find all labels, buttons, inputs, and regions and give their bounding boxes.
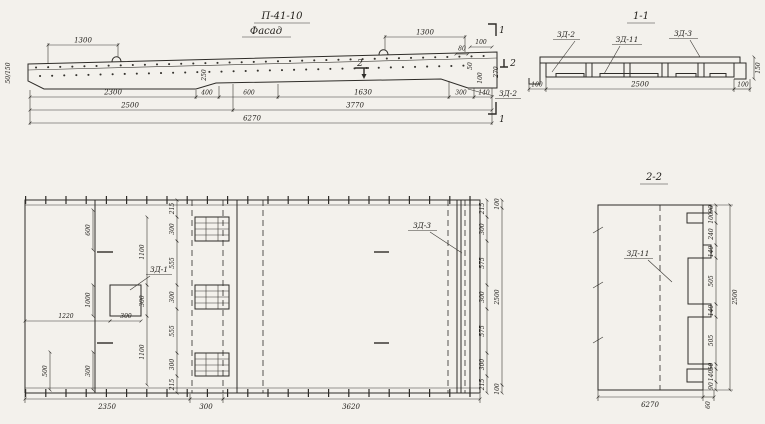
right-outer-dim: 100 <box>494 198 501 210</box>
s22-chain-dim: 50 <box>708 363 715 371</box>
dim-1220: 1220 <box>58 313 73 320</box>
facade-lifting-loop-right <box>379 50 388 55</box>
dim-6270: 6270 <box>243 115 261 123</box>
dim-300-bottom: 300 <box>199 403 213 411</box>
section11-right-step <box>734 63 746 79</box>
dim-100-top: 100 <box>475 39 487 46</box>
dim-250: 250 <box>201 69 208 82</box>
cut2-mid-arrow <box>362 74 367 79</box>
mesh-plate <box>195 353 229 376</box>
facade-beam-outline <box>28 52 497 89</box>
mid-chain-dim: 555 <box>169 257 176 269</box>
right-chain-dim: 300 <box>479 291 486 303</box>
dim-1630: 1630 <box>354 89 372 97</box>
section22-bottom-dim: 6270 60 <box>598 390 714 409</box>
dim-2350: 2350 <box>97 403 116 411</box>
cut1-bottom-label: 1 <box>499 115 505 125</box>
dim-600: 600 <box>243 90 255 97</box>
dim-1300-right: 1300 <box>416 29 434 37</box>
dim-80: 80 <box>458 46 466 53</box>
dim-300-square: 300 <box>120 313 132 320</box>
s22-chain-dim: 505 <box>708 335 715 347</box>
facade-dim-row2: 2500 3770 <box>30 102 492 111</box>
dim-3770: 3770 <box>346 102 364 110</box>
cut1-top-label: 1 <box>499 26 505 36</box>
section11-top-flange <box>540 57 740 63</box>
facade-rotated-dims: 50 100 270 250 50/150 <box>5 62 500 84</box>
plan-opening-zd1 <box>110 285 141 316</box>
dim-100-left-s11: 100 <box>531 82 543 89</box>
dim-2500-s11: 2500 <box>630 81 649 89</box>
right-outer-dim: 2500 <box>494 289 501 305</box>
section11-ribs <box>546 63 734 77</box>
dim-2300: 2300 <box>103 89 122 97</box>
mid-chain-dim: 215 <box>169 203 176 216</box>
drawing-svg: П-41-10 Фасад <box>0 0 765 424</box>
label-zd3: ЗД-3 <box>413 221 431 230</box>
s22-chain-dim: 505 <box>708 275 715 287</box>
dim-100-side: 100 <box>477 72 484 84</box>
dim-6270-s22: 6270 <box>641 401 659 409</box>
mid-chain-dim: 555 <box>169 325 176 337</box>
dim-2500: 2500 <box>120 102 139 110</box>
section22-right-chain: 90 100 240 140 505 140 505 50 140 90 250… <box>703 205 739 390</box>
s22-chain-dim: 90 <box>708 382 715 390</box>
facade-dim-row1: 2300 400 600 1630 300 140 <box>30 89 492 98</box>
facade-view: П-41-10 Фасад <box>5 11 521 125</box>
label-zd3-s11: ЗД-3 <box>674 29 692 38</box>
section-2-2-view: 2-2 ЗД-11 <box>593 172 739 409</box>
right-outer-dim: 100 <box>494 383 501 395</box>
label-zd2-s11: ЗД-2 <box>557 30 575 39</box>
section11-title: 1-1 <box>633 11 649 22</box>
label-zd11: ЗД-11 <box>627 249 650 258</box>
section22-notches <box>687 213 703 382</box>
facade-extension-lines <box>30 35 492 125</box>
s22-chain-dim: 90 <box>708 205 715 213</box>
mid-chain-dim: 300 <box>169 359 176 371</box>
section11-labels: ЗД-2 ЗД-11 ЗД-3 <box>552 29 700 74</box>
label-zd1: ЗД-1 <box>150 265 168 274</box>
dim-300-plan-left: 300 <box>85 365 92 377</box>
cut2-right-label: 2 <box>509 59 516 69</box>
plan-label-zd1: ЗД-1 <box>130 265 172 290</box>
right-chain-dim: 300 <box>479 359 486 371</box>
plan-bottom-chain: 2350 300 3620 <box>25 394 480 411</box>
label-zd11-s11: ЗД-11 <box>616 35 639 44</box>
dim-60-s22: 60 <box>705 401 712 409</box>
dim-300: 300 <box>455 90 467 97</box>
s22-chain-dim: 100 <box>708 212 715 224</box>
dim-1100-bottom: 1100 <box>139 344 146 359</box>
plan-mid-chain: 215 300 555 300 555 300 215 <box>169 200 177 393</box>
dim-50: 50 <box>467 62 474 70</box>
right-chain-dim: 215 <box>479 379 486 392</box>
section22-label-zd11: ЗД-11 <box>624 249 672 282</box>
right-chain-dim: 215 <box>479 203 486 216</box>
section11-dims: 100 2500 100 150 <box>529 57 762 92</box>
facade-title: П-41-10 <box>261 11 304 22</box>
cut2-right-flag <box>500 59 508 67</box>
plan-left-dims: 600 1000 300 500 1100 300 1100 1220 300 <box>25 210 147 390</box>
drawing-sheet: П-41-10 Фасад <box>0 0 765 424</box>
right-chain-dim: 575 <box>479 257 486 269</box>
plan-right-chain: 215 300 575 300 575 300 215 100 2500 100 <box>479 198 502 395</box>
cut2-mid-flag <box>355 68 369 75</box>
s22-chain-dim: 240 <box>708 228 715 241</box>
label-zd2: ЗД-2 <box>499 89 517 98</box>
plan-label-zd3: ЗД-3 <box>408 221 462 253</box>
plan-view: ЗД-1 ЗД-3 600 1000 300 500 1100 <box>25 198 502 411</box>
dim-3620: 3620 <box>342 403 360 411</box>
facade-flange-line <box>28 58 497 70</box>
dim-left-height: 50/150 <box>5 62 12 83</box>
s22-chain-dim: 140 <box>708 246 715 258</box>
s22-chain-dim: 140 <box>708 305 715 317</box>
mesh-plate <box>195 217 229 241</box>
dim-1300-left: 1300 <box>74 37 92 45</box>
facade-subtitle: Фасад <box>250 26 282 37</box>
dim-100-right-s11: 100 <box>737 82 749 89</box>
dim-2500-s22: 2500 <box>732 289 739 305</box>
mesh-plate <box>195 285 229 309</box>
dim-500-plan: 500 <box>42 365 49 377</box>
mid-chain-dim: 300 <box>169 291 176 303</box>
plan-mesh-plates <box>195 217 229 376</box>
cut1-top-flag <box>488 24 496 36</box>
dim-600-plan: 600 <box>85 224 92 236</box>
dim-300-square-side: 300 <box>139 295 146 307</box>
mid-chain-dim: 215 <box>169 379 176 392</box>
dim-1100-top: 1100 <box>139 244 146 259</box>
section-1-1-view: 1-1 ЗД-2 ЗД-11 ЗД-3 <box>529 11 762 92</box>
facade-anchor-dots <box>36 56 492 76</box>
dim-1000-plan: 1000 <box>85 292 92 307</box>
right-chain-dim: 300 <box>479 223 486 235</box>
facade-dim-total: 6270 <box>30 115 492 124</box>
dim-270: 270 <box>493 66 500 79</box>
section22-body <box>598 205 703 390</box>
section22-title: 2-2 <box>645 172 662 183</box>
dim-140: 140 <box>478 90 490 97</box>
right-chain-dim: 575 <box>479 325 486 337</box>
s22-chain-dim: 140 <box>708 370 715 382</box>
dim-400: 400 <box>200 90 213 97</box>
dim-150-s11: 150 <box>755 62 762 74</box>
mid-chain-dim: 300 <box>169 223 176 235</box>
